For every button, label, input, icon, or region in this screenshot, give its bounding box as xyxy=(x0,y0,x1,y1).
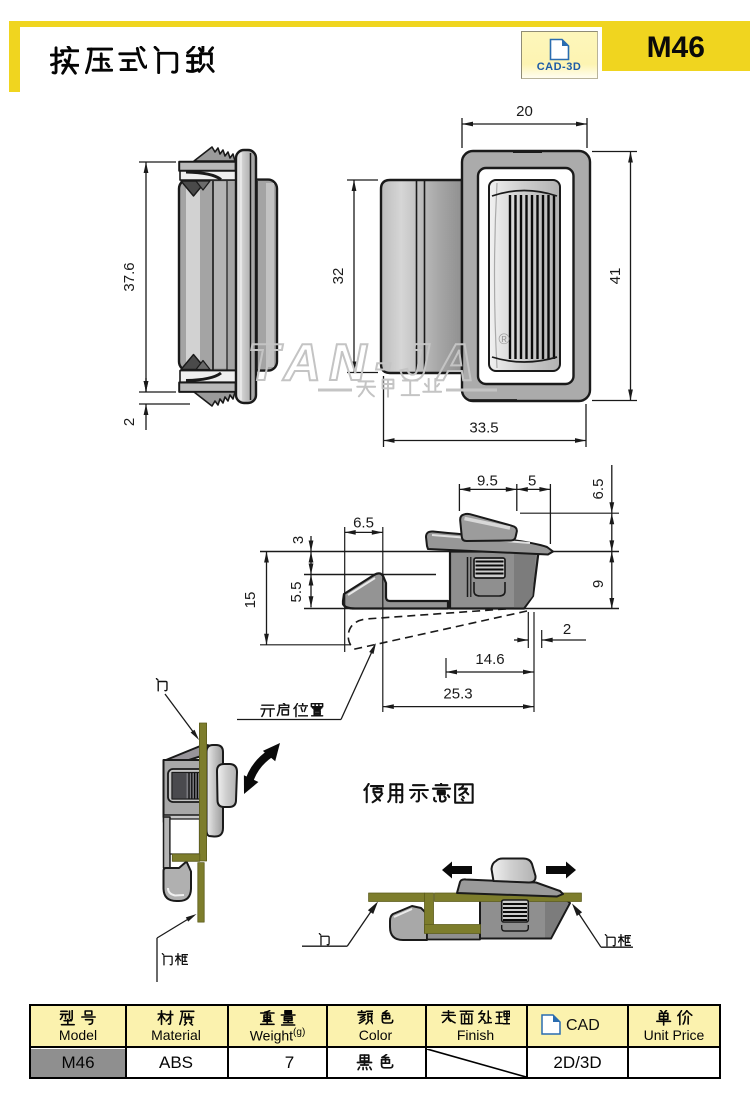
svg-text:25.3: 25.3 xyxy=(443,686,472,703)
svg-text:32: 32 xyxy=(330,268,347,285)
svg-text:3: 3 xyxy=(290,536,307,544)
svg-text:41: 41 xyxy=(607,268,624,285)
svg-text:9: 9 xyxy=(590,580,607,588)
svg-text:5: 5 xyxy=(528,473,536,490)
svg-text:2: 2 xyxy=(563,621,571,638)
svg-text:®: ® xyxy=(498,331,509,348)
svg-text:5.5: 5.5 xyxy=(288,582,305,603)
svg-text:37.6: 37.6 xyxy=(121,262,138,291)
svg-text:20: 20 xyxy=(516,103,533,120)
svg-text:9.5: 9.5 xyxy=(477,473,498,490)
svg-text:15: 15 xyxy=(242,592,259,609)
svg-text:2: 2 xyxy=(121,418,138,426)
svg-text:33.5: 33.5 xyxy=(469,420,498,437)
svg-text:6.5: 6.5 xyxy=(590,479,607,500)
svg-text:14.6: 14.6 xyxy=(475,651,504,668)
svg-text:6.5: 6.5 xyxy=(353,515,374,532)
